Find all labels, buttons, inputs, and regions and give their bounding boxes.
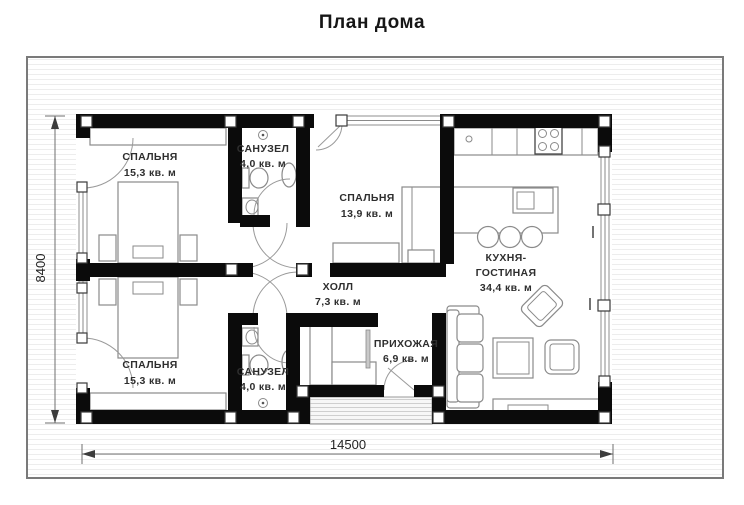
wardrobe-hatch xyxy=(90,128,226,145)
wall xyxy=(240,215,270,227)
sofa xyxy=(447,306,483,408)
wall-post xyxy=(297,386,308,397)
wall-post xyxy=(81,412,92,423)
room-label-kitchen-line1: КУХНЯ- xyxy=(486,252,527,264)
nightstand xyxy=(99,279,116,305)
dim-width-label: 14500 xyxy=(330,437,366,452)
room-label-hall: ХОЛЛ xyxy=(323,281,354,293)
vent-dot xyxy=(262,134,265,137)
bar-stool xyxy=(500,227,521,248)
room-label-entry: ПРИХОЖАЯ xyxy=(374,338,438,350)
wall xyxy=(76,410,310,424)
wall xyxy=(330,263,446,277)
bar-stool xyxy=(522,227,543,248)
wardrobe-hatch xyxy=(90,393,226,410)
room-label-bedroom-mid: СПАЛЬНЯ xyxy=(339,192,394,204)
room-area-bathroom-bottom: 4,0 кв. м xyxy=(240,381,286,393)
wall xyxy=(440,114,454,264)
wall-post xyxy=(599,376,610,387)
wall-post xyxy=(77,383,87,393)
wall-post xyxy=(433,386,444,397)
porch-steps xyxy=(310,397,432,424)
wall xyxy=(240,313,258,325)
wall xyxy=(448,114,612,128)
double-bed xyxy=(118,277,178,358)
wall-post xyxy=(336,115,347,126)
room-area-bedroom-bottom: 15,3 кв. м xyxy=(124,375,176,387)
wall-post xyxy=(81,116,92,127)
nightstand xyxy=(180,235,197,261)
wall xyxy=(296,114,310,227)
wall-post xyxy=(297,264,308,275)
double-bed xyxy=(118,182,178,263)
room-label-bedroom-top: СПАЛЬНЯ xyxy=(122,151,177,163)
wall-post xyxy=(288,412,299,423)
wardrobe-hatch xyxy=(333,243,399,263)
wall-post xyxy=(77,253,87,263)
armchair xyxy=(545,340,579,374)
room-area-bedroom-mid: 13,9 кв. м xyxy=(341,208,393,220)
wall-post xyxy=(598,204,610,215)
wall-post xyxy=(598,300,610,311)
wall-post xyxy=(226,264,237,275)
wall xyxy=(76,114,314,128)
room-area-hall: 7,3 кв. м xyxy=(315,296,361,308)
room-area-entry: 6,9 кв. м xyxy=(383,353,429,365)
room-label-kitchen-line2: ГОСТИНАЯ xyxy=(476,267,537,279)
bar-stool xyxy=(478,227,499,248)
room-label-bathroom-top: САНУЗЕЛ xyxy=(237,143,289,155)
bed-bench xyxy=(408,250,434,263)
wall-post xyxy=(599,412,610,423)
wall-post xyxy=(77,333,87,343)
wall-post xyxy=(599,116,610,127)
wardrobe-hatch xyxy=(310,320,332,385)
wall-post xyxy=(77,182,87,192)
wall-post xyxy=(433,412,444,423)
wall-post xyxy=(293,116,304,127)
toilet-bowl xyxy=(250,168,268,188)
coffee-table xyxy=(493,338,533,378)
mirror xyxy=(366,330,370,368)
toilet-tank xyxy=(242,168,249,188)
wall-post xyxy=(225,116,236,127)
wall-post xyxy=(599,146,610,157)
stove-icon xyxy=(535,126,562,154)
wall xyxy=(446,410,612,424)
nightstand xyxy=(99,235,116,261)
vent-dot xyxy=(262,402,265,405)
floor-plan-svg: СПАЛЬНЯ 15,3 кв. м САНУЗЕЛ 4,0 кв. м СПА… xyxy=(0,0,744,505)
room-area-bedroom-top: 15,3 кв. м xyxy=(124,167,176,179)
room-area-kitchen: 34,4 кв. м xyxy=(480,282,532,294)
nightstand xyxy=(180,279,197,305)
wall xyxy=(296,313,378,327)
room-label-bathroom-bottom: САНУЗЕЛ xyxy=(237,366,289,378)
wall-post xyxy=(443,116,454,127)
wall-post xyxy=(77,283,87,293)
dim-height-label: 8400 xyxy=(33,254,48,283)
room-area-bathroom-top: 4,0 кв. м xyxy=(240,158,286,170)
wall xyxy=(432,313,446,424)
wall-post xyxy=(225,412,236,423)
kitchen-counter xyxy=(454,128,598,155)
room-label-bedroom-bottom: СПАЛЬНЯ xyxy=(122,359,177,371)
